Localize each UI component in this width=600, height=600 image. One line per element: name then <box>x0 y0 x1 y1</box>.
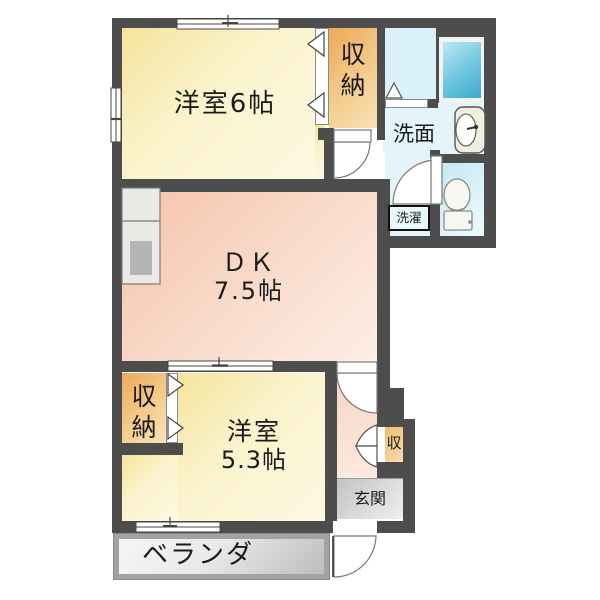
wall-entry-block-top <box>377 388 404 427</box>
entrance-label: 玄関 <box>337 490 403 508</box>
wall-under-entry-closet <box>377 462 403 478</box>
bathroom-opening <box>385 99 428 108</box>
corridor-floor <box>337 372 377 478</box>
bathroom-floor <box>383 28 438 108</box>
room-bedroom6-label: 洋室6帖 <box>145 90 305 120</box>
bathtub-icon <box>443 42 481 98</box>
wall-toilet-top <box>438 154 484 163</box>
laundry-space: 洗濯 <box>388 205 430 231</box>
wall-bath-opening-stub <box>428 99 438 108</box>
wall-washblock-bottom <box>377 236 496 248</box>
room-dk-size: 7.5帖 <box>169 278 329 306</box>
veranda-label: ベランダ <box>98 541 298 571</box>
wall-right <box>484 18 496 248</box>
closet-upper-door-strip <box>315 28 329 125</box>
toilet-room-floor <box>438 163 484 236</box>
wall-closet-lower-bottom <box>113 443 183 455</box>
wall-left <box>112 18 122 533</box>
room-bedroom53-floor-left <box>122 455 178 521</box>
wall-closet-upper-stub <box>318 128 324 140</box>
entrance-door-icon <box>333 536 376 577</box>
closet-upper-label: 収納 <box>339 40 367 101</box>
closet-lower-label: 収納 <box>130 382 158 443</box>
room-bedroom53-name: 洋室 <box>175 418 333 447</box>
wall-top <box>112 18 496 28</box>
wall-bottom-entrance <box>377 521 415 533</box>
washroom-label: 洗面 <box>384 122 444 146</box>
room-dk-name: ＤＫ <box>169 249 329 278</box>
wall-bedroom6-bottom <box>112 179 385 192</box>
wall-dk-bottom <box>112 361 337 372</box>
laundry-label: 洗濯 <box>396 211 421 225</box>
wall-toilet-left-upper <box>430 150 440 158</box>
wall-toilet-left-lower <box>430 204 440 236</box>
wall-bedroom6-right <box>324 128 334 179</box>
closet-entry-label: 収 <box>383 435 405 452</box>
floor-plan: 洗濯 <box>0 0 600 600</box>
washroom-doorway-area <box>334 140 377 179</box>
wall-bottom-left <box>112 521 333 533</box>
room-bedroom53-size: 5.3帖 <box>175 447 333 475</box>
